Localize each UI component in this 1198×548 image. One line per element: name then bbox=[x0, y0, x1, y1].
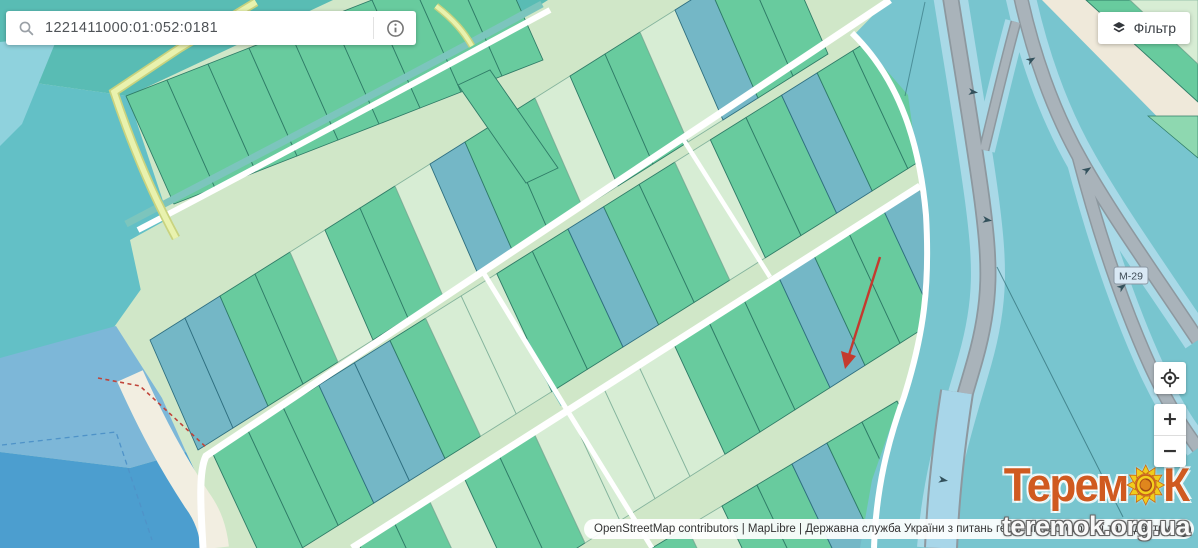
search-bar bbox=[6, 11, 416, 45]
attribution-text: OpenStreetMap contributors | MapLibre | … bbox=[594, 523, 1170, 535]
locate-target-icon bbox=[1159, 367, 1181, 389]
attribution-info-button[interactable]: i bbox=[1176, 522, 1191, 537]
info-icon bbox=[386, 19, 405, 38]
info-button[interactable] bbox=[374, 11, 416, 45]
map-canvas[interactable]: М-29 bbox=[0, 0, 1198, 548]
filter-button-label: Фільтр bbox=[1134, 20, 1176, 36]
zoom-control: + − bbox=[1154, 404, 1186, 467]
road-label: М-29 bbox=[1119, 271, 1143, 283]
zoom-in-button[interactable]: + bbox=[1154, 404, 1186, 435]
filter-button[interactable]: Фільтр bbox=[1098, 12, 1190, 44]
map-container[interactable]: М-29 bbox=[0, 0, 1198, 548]
attribution-bar: OpenStreetMap contributors | MapLibre | … bbox=[584, 519, 1194, 539]
filter-layers-icon bbox=[1112, 21, 1126, 35]
zoom-out-button[interactable]: − bbox=[1154, 436, 1186, 467]
search-input[interactable] bbox=[45, 11, 373, 45]
search-icon bbox=[18, 20, 35, 37]
locate-button[interactable] bbox=[1154, 362, 1186, 394]
